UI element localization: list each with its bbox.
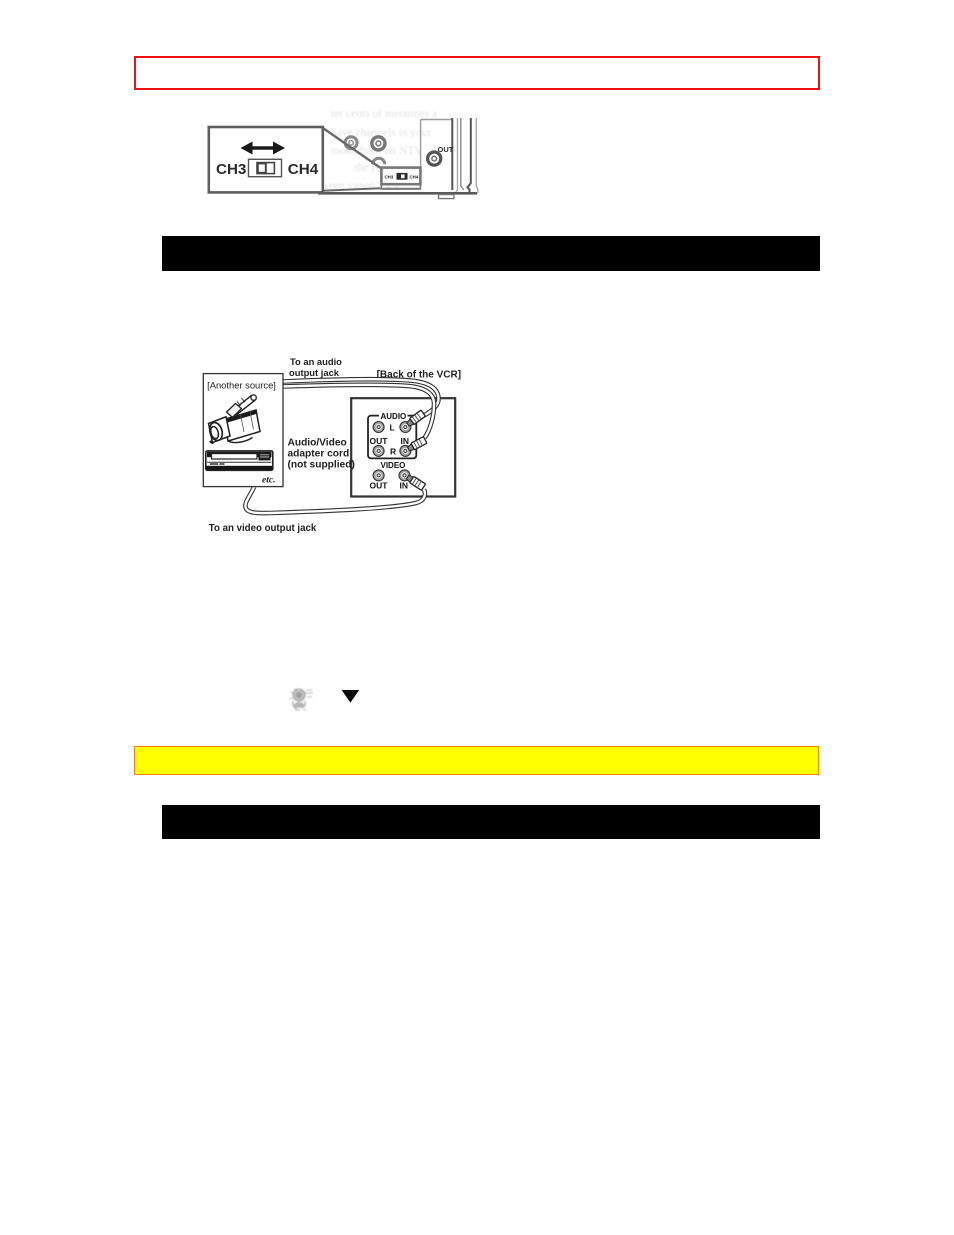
svg-text:CH3: CH3 [385,174,394,179]
svg-text:(not supplied): (not supplied) [288,460,355,471]
svg-text:OUT: OUT [370,481,389,491]
svg-text:OUT: OUT [370,436,389,446]
svg-text:CH4: CH4 [288,161,319,178]
svg-text:AUDIO: AUDIO [381,412,407,421]
svg-text:VIDEO: VIDEO [381,461,406,470]
svg-text:R: R [390,447,396,457]
svg-text:L: L [390,423,395,433]
svg-text:To an video output jack: To an video output jack [209,523,317,534]
svg-text:OUT: OUT [438,145,454,154]
svg-text:To an audio: To an audio [290,356,342,367]
svg-text:CH4: CH4 [410,174,419,179]
svg-text:ter cents of meomnes a: ter cents of meomnes a [331,108,437,120]
svg-text:IN: IN [401,436,410,446]
svg-text:Audio/Video: Audio/Video [288,438,347,449]
svg-text:IN: IN [400,481,409,491]
svg-text:adapter cord: adapter cord [288,449,350,460]
svg-text:CH3: CH3 [216,161,246,178]
svg-text:output jack: output jack [289,367,340,378]
svg-text:[Another source]: [Another source] [207,379,276,390]
svg-text:etc.: etc. [262,476,275,486]
